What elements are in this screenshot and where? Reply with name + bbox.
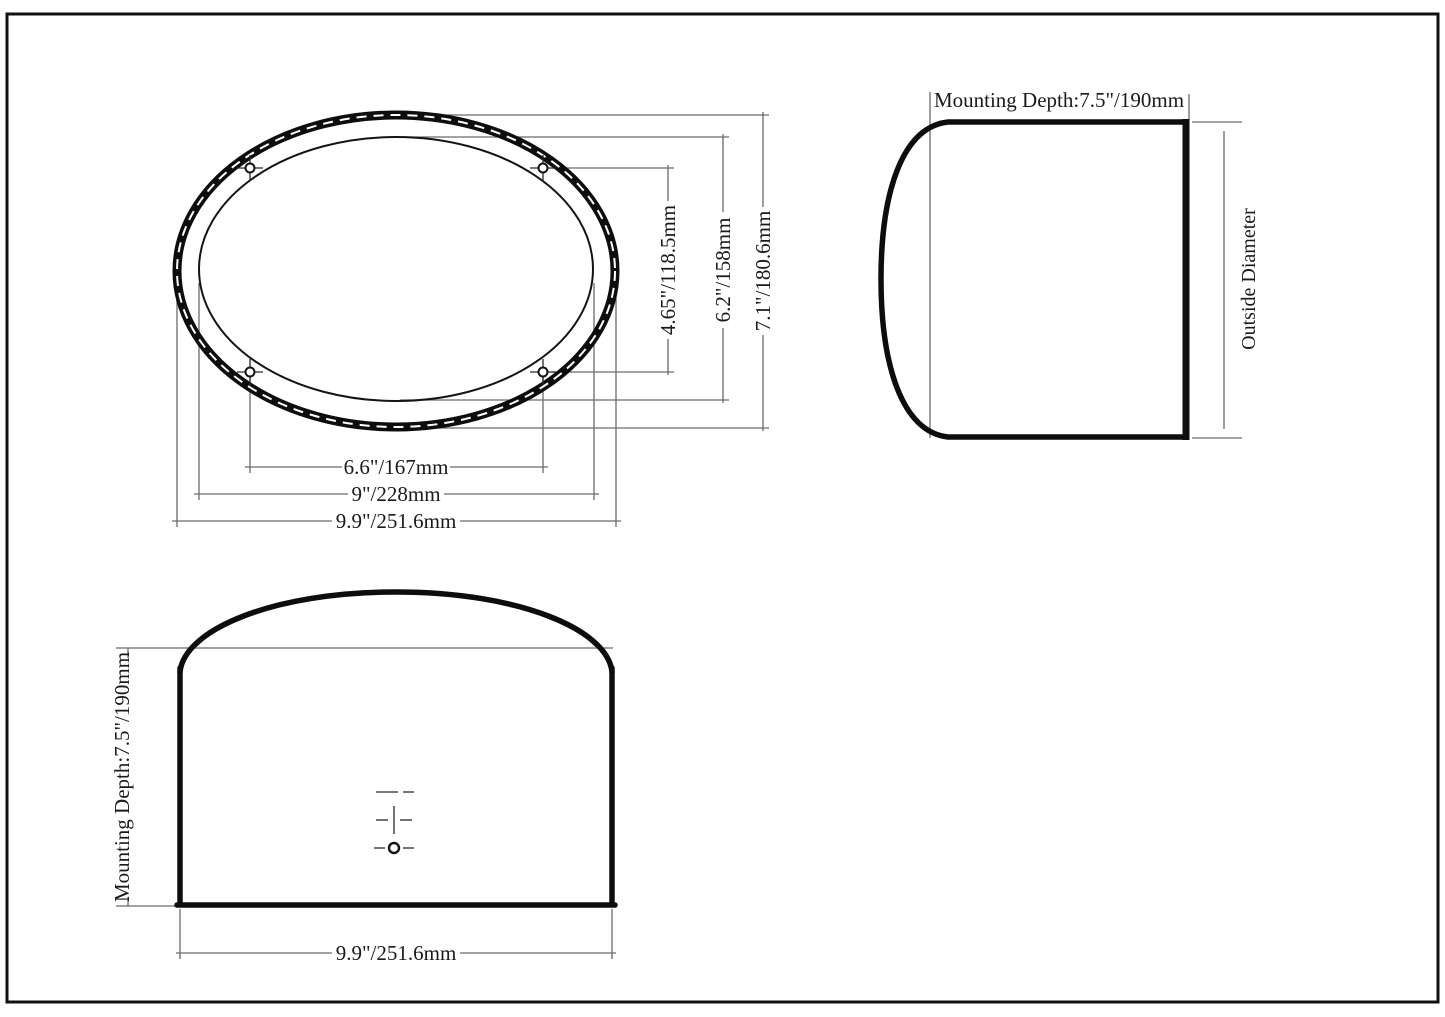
front-view: 4.65"/118.5mm 6.2"/158mm 7.1"/180.6mm 6.… [172, 112, 775, 533]
dim-label-overall-height: 7.1"/180.6mm [751, 207, 775, 335]
svg-text:6.6"/167mm: 6.6"/167mm [344, 455, 449, 479]
dim-label-hole-spacing-width: 6.6"/167mm [342, 455, 450, 479]
dim-label-mounting-depth: Mounting Depth:7.5"/190mm [110, 652, 134, 902]
dim-label-cutout-width: 9"/228mm [348, 482, 444, 506]
dim-label-overall-width: 9.9"/251.6mm [332, 941, 460, 965]
svg-text:4.65"/118.5mm: 4.65"/118.5mm [656, 205, 680, 335]
speaker-dome-outline [180, 592, 612, 672]
speaker-outer-ring [177, 115, 615, 427]
top-view: Mounting Depth:7.5"/190mm 9.9"/251.6mm [110, 592, 616, 965]
svg-text:9.9"/251.6mm: 9.9"/251.6mm [336, 941, 457, 965]
dim-label-mounting-depth: Mounting Depth:7.5"/190mm [934, 88, 1184, 112]
drawing-canvas: 4.65"/118.5mm 6.2"/158mm 7.1"/180.6mm 6.… [0, 0, 1445, 1017]
label-outside-diameter: Outside Diameter [1238, 208, 1260, 350]
technical-drawing-page: 4.65"/118.5mm 6.2"/158mm 7.1"/180.6mm 6.… [0, 0, 1445, 1017]
side-view: Mounting Depth:7.5"/190mm Outside Diamet… [881, 88, 1260, 440]
center-marks [374, 792, 414, 853]
svg-text:9"/228mm: 9"/228mm [351, 482, 440, 506]
dim-label-overall-width: 9.9"/251.6mm [332, 509, 460, 533]
dim-label-cutout-height: 6.2"/158mm [711, 212, 735, 328]
speaker-body-outline [881, 122, 1186, 437]
speaker-cutout-ellipse [199, 137, 593, 401]
svg-text:9.9"/251.6mm: 9.9"/251.6mm [336, 509, 457, 533]
svg-text:7.1"/180.6mm: 7.1"/180.6mm [751, 211, 775, 332]
terminal-hole [389, 843, 399, 853]
svg-text:6.2"/158mm: 6.2"/158mm [711, 218, 735, 323]
dim-label-hole-spacing-height: 4.65"/118.5mm [656, 201, 680, 339]
